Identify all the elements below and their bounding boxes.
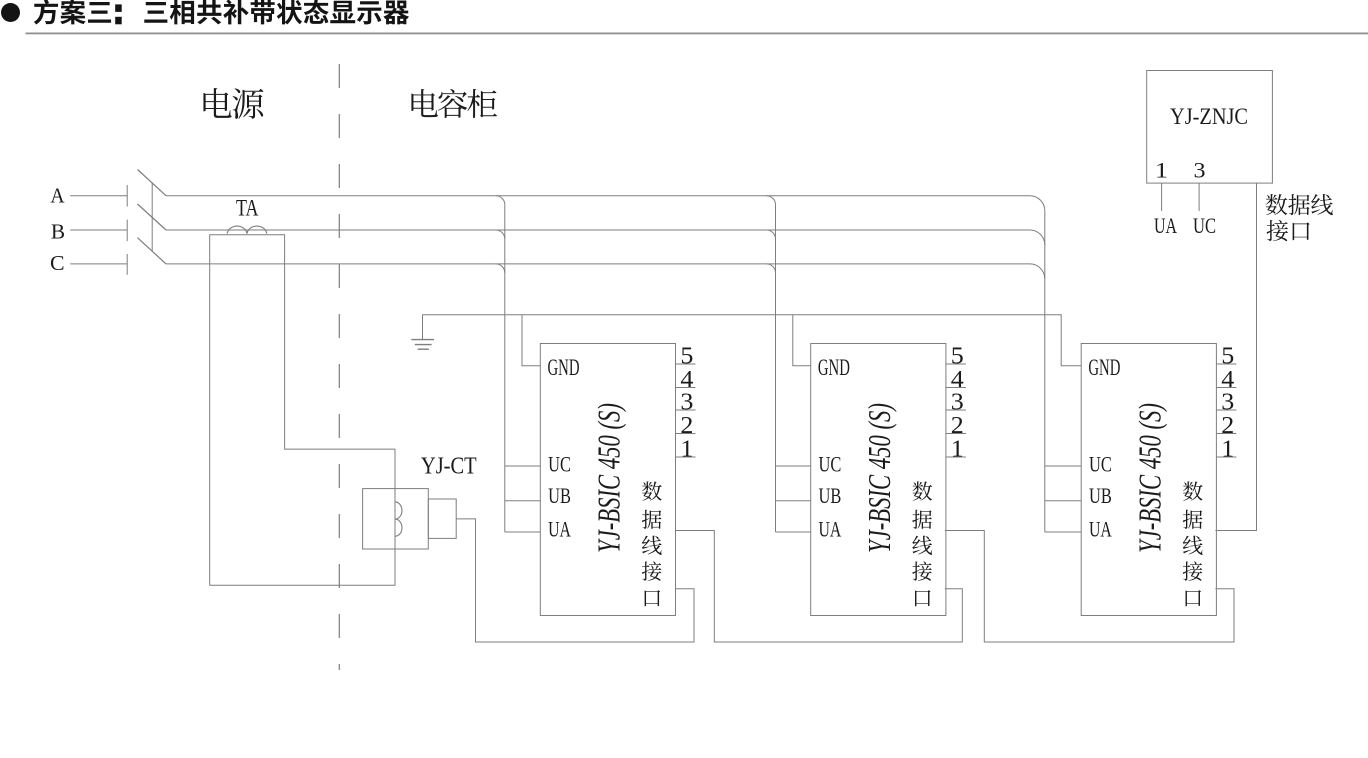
svg-text:3: 3 (1221, 390, 1234, 416)
svg-text:TA: TA (236, 196, 259, 221)
svg-text:UC: UC (1089, 452, 1112, 477)
svg-text:UC: UC (548, 452, 571, 477)
svg-text:2: 2 (1221, 413, 1234, 439)
svg-text:UA: UA (548, 516, 571, 541)
svg-text:3: 3 (1194, 158, 1206, 183)
svg-text:1: 1 (951, 437, 964, 463)
svg-text:B: B (51, 220, 65, 244)
svg-text:A: A (50, 183, 65, 207)
svg-text:5: 5 (1221, 344, 1234, 370)
svg-text:GND: GND (1088, 355, 1120, 380)
svg-text:2: 2 (951, 413, 964, 439)
svg-text:UC: UC (1193, 213, 1216, 238)
svg-text:GND: GND (548, 355, 580, 380)
svg-text:UC: UC (819, 452, 842, 477)
svg-text:UB: UB (548, 483, 571, 508)
svg-text:YJ-BSIC 450 (S): YJ-BSIC 450 (S) (861, 403, 897, 553)
svg-text:1: 1 (1155, 158, 1168, 183)
svg-text:YJ-BSIC 450 (S): YJ-BSIC 450 (S) (1132, 403, 1168, 553)
svg-text:UA: UA (1089, 516, 1112, 541)
svg-text:UA: UA (819, 516, 842, 541)
svg-text:UA: UA (1154, 213, 1177, 238)
svg-text:1: 1 (1221, 437, 1234, 463)
svg-text:2: 2 (680, 413, 693, 439)
svg-text:3: 3 (951, 390, 964, 416)
svg-text:GND: GND (818, 355, 850, 380)
svg-text:YJ-CT: YJ-CT (421, 454, 477, 480)
svg-text:UB: UB (819, 483, 842, 508)
svg-text:C: C (50, 251, 65, 275)
svg-text:3: 3 (680, 390, 693, 416)
svg-text:5: 5 (680, 344, 693, 370)
svg-text:YJ-ZNJC: YJ-ZNJC (1170, 104, 1248, 129)
svg-text:UB: UB (1089, 483, 1112, 508)
svg-text:YJ-BSIC 450 (S): YJ-BSIC 450 (S) (591, 403, 627, 553)
svg-text:5: 5 (951, 344, 964, 370)
svg-text:1: 1 (680, 437, 693, 463)
